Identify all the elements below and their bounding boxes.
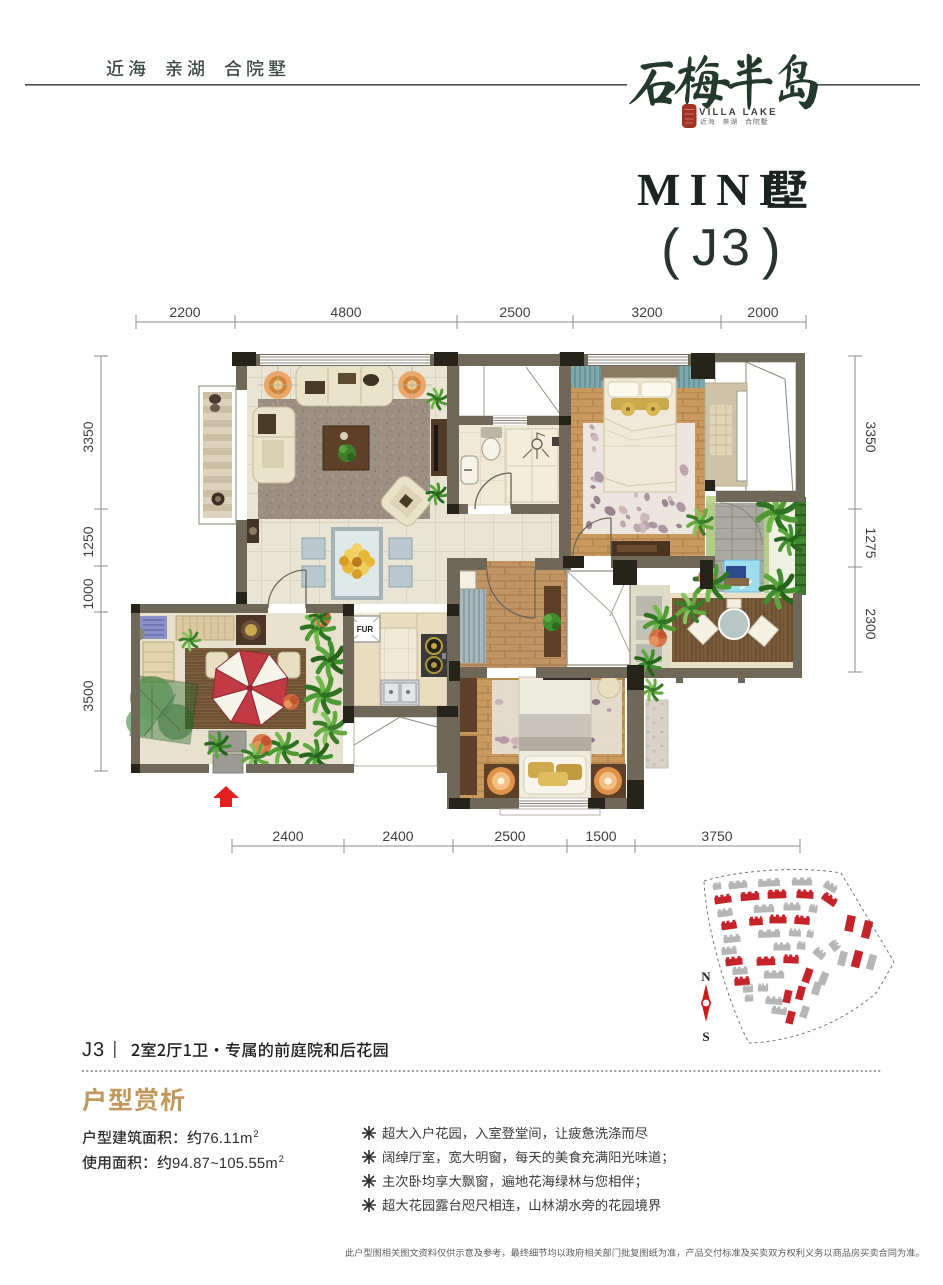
svg-text:2500: 2500 xyxy=(499,304,530,320)
svg-text:1500: 1500 xyxy=(585,828,616,844)
svg-text:1000: 1000 xyxy=(80,578,96,609)
svg-text:FUR: FUR xyxy=(357,625,374,634)
svg-text:S: S xyxy=(702,1029,709,1044)
svg-text:2000: 2000 xyxy=(747,304,778,320)
svg-text:3350: 3350 xyxy=(80,421,96,452)
svg-text:N: N xyxy=(701,969,711,984)
svg-text:1250: 1250 xyxy=(80,526,96,557)
svg-text:2200: 2200 xyxy=(169,304,200,320)
svg-text:3200: 3200 xyxy=(631,304,662,320)
svg-text:2300: 2300 xyxy=(863,608,879,639)
svg-text:2400: 2400 xyxy=(382,828,413,844)
svg-text:2500: 2500 xyxy=(494,828,525,844)
svg-text:3350: 3350 xyxy=(863,421,879,452)
svg-text:3500: 3500 xyxy=(80,680,96,711)
svg-text:1275: 1275 xyxy=(863,527,879,558)
svg-text:3750: 3750 xyxy=(701,828,732,844)
svg-text:2400: 2400 xyxy=(272,828,303,844)
svg-text:4800: 4800 xyxy=(330,304,361,320)
